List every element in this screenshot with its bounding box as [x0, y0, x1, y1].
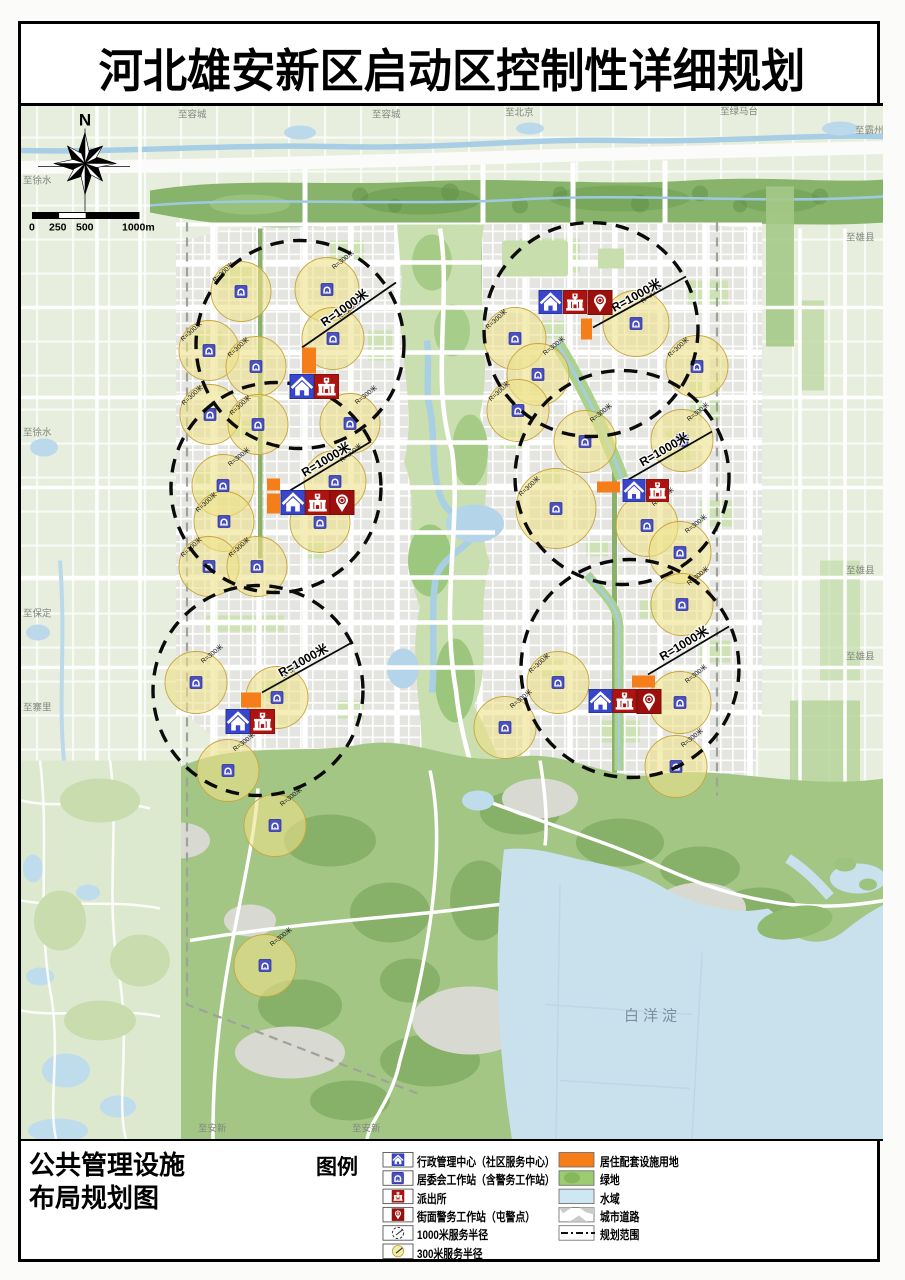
svg-text:至容城: 至容城 [178, 108, 207, 120]
svg-text:至霸州: 至霸州 [855, 125, 883, 136]
svg-text:500: 500 [76, 221, 94, 233]
svg-text:至安新: 至安新 [352, 1122, 381, 1134]
svg-text:0: 0 [29, 221, 35, 233]
svg-text:至雄县: 至雄县 [846, 564, 875, 576]
svg-text:1000m: 1000m [122, 221, 155, 233]
svg-text:至寨里: 至寨里 [23, 701, 52, 713]
svg-text:至容城: 至容城 [372, 108, 401, 120]
svg-text:至绿马台: 至绿马台 [720, 106, 758, 118]
svg-text:至安新: 至安新 [198, 1122, 227, 1134]
svg-text:N: N [79, 110, 91, 129]
svg-text:至北京: 至北京 [505, 106, 534, 118]
svg-text:至雄县: 至雄县 [846, 231, 875, 243]
svg-text:至雄县: 至雄县 [846, 650, 875, 662]
svg-text:白洋淀: 白洋淀 [624, 1007, 681, 1024]
svg-text:至徐水: 至徐水 [23, 174, 52, 186]
svg-text:250: 250 [49, 221, 67, 233]
svg-text:至徐水: 至徐水 [23, 426, 52, 438]
svg-text:至保定: 至保定 [23, 607, 52, 619]
